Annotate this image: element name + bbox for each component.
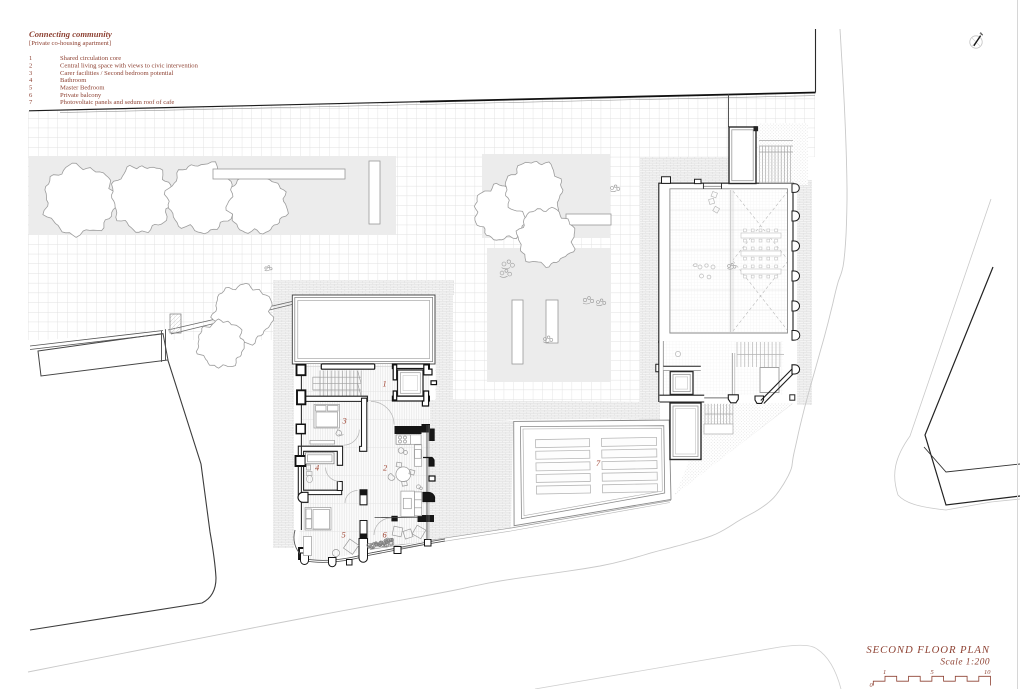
svg-text:Shared circulation core: Shared circulation core	[60, 55, 121, 62]
svg-text:Carer facilities / Second bedr: Carer facilities / Second bedroom potent…	[60, 70, 174, 77]
svg-text:SECOND FLOOR PLAN: SECOND FLOOR PLAN	[866, 644, 990, 656]
svg-text:7: 7	[29, 99, 33, 106]
svg-text:2: 2	[383, 464, 387, 473]
svg-text:6: 6	[29, 92, 33, 99]
svg-text:4: 4	[29, 77, 33, 84]
svg-text:5: 5	[29, 85, 33, 92]
svg-text:10: 10	[984, 669, 991, 676]
svg-text:Central living space with view: Central living space with views to civic…	[60, 63, 199, 70]
svg-text:Scale 1:200: Scale 1:200	[940, 658, 990, 668]
svg-text:1: 1	[883, 669, 886, 676]
svg-text:3: 3	[342, 417, 347, 426]
svg-text:[Private co-housing apartment]: [Private co-housing apartment]	[29, 40, 111, 47]
svg-text:Bathroom: Bathroom	[60, 77, 87, 84]
svg-text:4: 4	[315, 464, 319, 473]
svg-text:2: 2	[29, 63, 32, 70]
svg-text:5: 5	[931, 669, 934, 676]
svg-text:5: 5	[342, 531, 346, 540]
svg-text:Connecting community: Connecting community	[29, 29, 112, 39]
svg-text:1: 1	[29, 55, 32, 62]
svg-text:Master Bedroom: Master Bedroom	[60, 85, 105, 92]
svg-text:Photovoltaic panels and sedum: Photovoltaic panels and sedum roof of ca…	[60, 99, 174, 106]
svg-text:Private balcony: Private balcony	[60, 92, 102, 99]
svg-text:3: 3	[29, 70, 33, 77]
svg-text:1: 1	[383, 380, 387, 389]
